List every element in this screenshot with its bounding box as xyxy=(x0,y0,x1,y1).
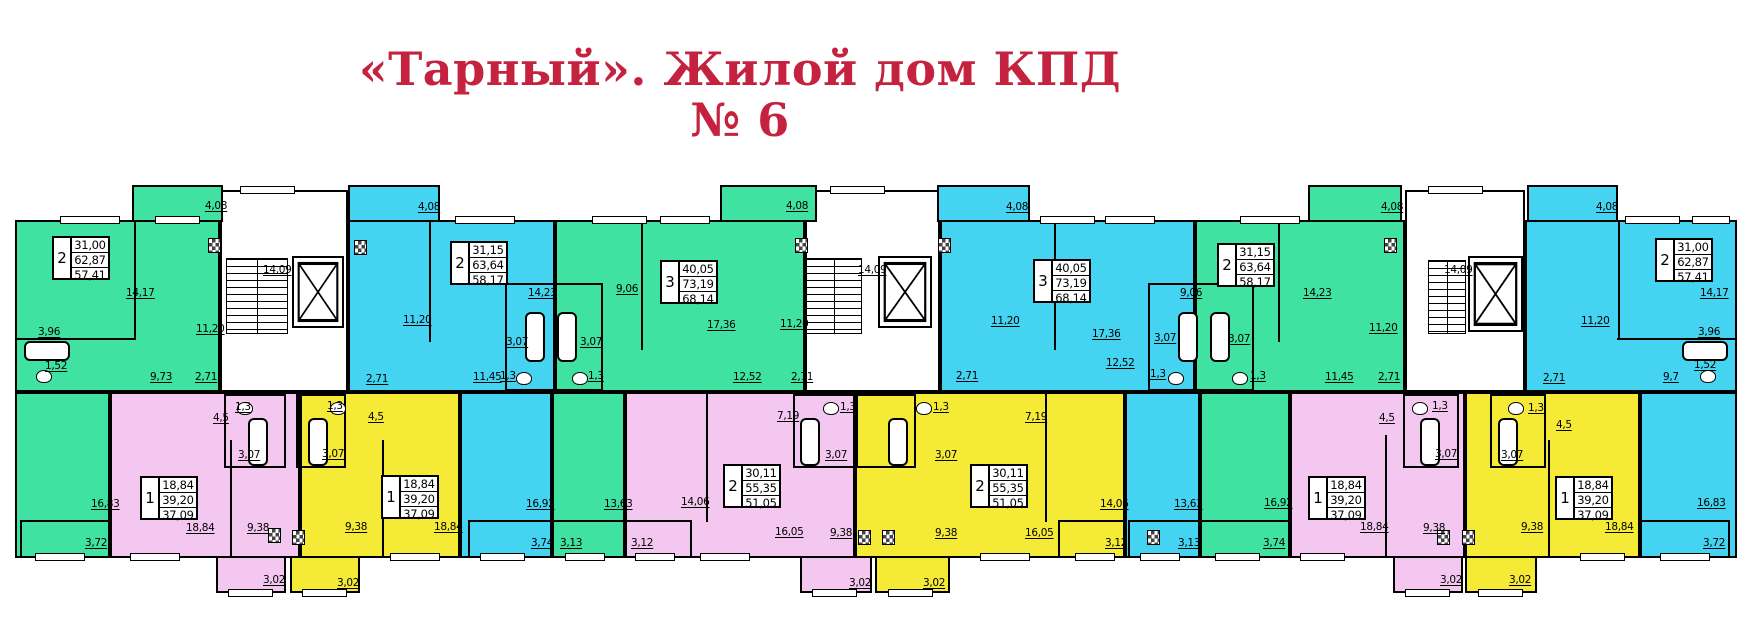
dimension-label: 12,52 xyxy=(1106,358,1135,369)
dimension-label: 3,74 xyxy=(531,538,553,549)
toilet xyxy=(916,402,932,415)
dimension-label: 3,07 xyxy=(935,450,957,461)
vent-shape xyxy=(292,530,305,545)
apartment-info: 231,1563,6458,17 xyxy=(1217,243,1275,287)
dimension-label: 18,84 xyxy=(434,522,463,533)
dimension-label: 3,02 xyxy=(337,578,359,589)
dimension-label: 2,71 xyxy=(1543,373,1565,384)
toilet xyxy=(1700,370,1716,383)
dimension-label: 14,23 xyxy=(528,288,557,299)
dimension-label: 3,02 xyxy=(263,575,285,586)
window-shape xyxy=(1240,216,1300,224)
area-living: 40,05 xyxy=(1053,261,1089,276)
room-count: 1 xyxy=(1310,478,1328,518)
wall-shape xyxy=(1278,220,1280,342)
wall-shape xyxy=(15,390,1737,393)
dimension-label: 9,06 xyxy=(1180,288,1202,299)
dimension-label: 4,5 xyxy=(213,413,229,424)
bathtub xyxy=(800,418,820,466)
window-shape xyxy=(1692,216,1730,224)
dimension-label: 9,7 xyxy=(1663,372,1679,383)
window-shape xyxy=(1075,553,1115,561)
wall-shape xyxy=(1618,220,1620,340)
area-living: 31,00 xyxy=(72,238,108,253)
area-total: 39,20 xyxy=(401,492,437,507)
dimension-label: 1,3 xyxy=(1150,369,1166,380)
area-total: 63,64 xyxy=(1237,260,1273,275)
dimension-label: 11,20 xyxy=(403,315,432,326)
dimension-label: 1,3 xyxy=(1528,403,1544,414)
dimension-label: 3,12 xyxy=(631,538,653,549)
bathtub xyxy=(557,312,577,362)
dimension-label: 3,72 xyxy=(1703,538,1725,549)
dimension-label: 7,19 xyxy=(1025,412,1047,423)
window-shape xyxy=(35,553,85,561)
dimension-label: 1,52 xyxy=(1694,360,1716,371)
dimension-label: 3,07 xyxy=(1228,334,1250,345)
window-shape xyxy=(1428,186,1483,194)
dimension-label: 4,08 xyxy=(1006,202,1028,213)
dimension-label: 11,20 xyxy=(780,319,809,330)
dimension-label: 18,84 xyxy=(186,523,215,534)
dimension-label: 14,17 xyxy=(1700,288,1729,299)
dimension-label: 1,3 xyxy=(933,402,949,413)
dimension-label: 2,71 xyxy=(1378,372,1400,383)
dimension-label: 4,08 xyxy=(786,201,808,212)
toilet xyxy=(823,402,839,415)
dimension-label: 16,05 xyxy=(775,527,804,538)
dimension-label: 3,07 xyxy=(1501,450,1523,461)
area-reduced: 57,41 xyxy=(72,268,108,282)
dimension-label: 3,07 xyxy=(322,449,344,460)
bathtub xyxy=(1178,312,1198,362)
dimension-label: 16,92 xyxy=(1264,498,1293,509)
area-total: 39,20 xyxy=(1575,493,1611,508)
dimension-label: 1,3 xyxy=(840,402,856,413)
area-living: 31,15 xyxy=(1237,245,1273,260)
dimension-label: 13,63 xyxy=(1174,499,1203,510)
area-living: 30,11 xyxy=(743,466,779,481)
dimension-label: 3,07 xyxy=(506,337,528,348)
window-shape xyxy=(1405,589,1450,597)
window-shape xyxy=(1478,589,1523,597)
dimension-label: 9,38 xyxy=(830,528,852,539)
window-shape xyxy=(1625,216,1680,224)
area-living: 18,84 xyxy=(1575,478,1611,493)
apartment-info: 231,0062,8757,41 xyxy=(52,236,110,280)
vent-shape xyxy=(208,238,221,253)
window-shape xyxy=(592,216,647,224)
apartment-info: 231,1563,6458,17 xyxy=(450,241,508,285)
dimension-label: 14,23 xyxy=(1303,288,1332,299)
area-reduced: 68,14 xyxy=(680,292,716,306)
dimension-label: 14,09 xyxy=(858,265,887,276)
apartment-info: 230,1155,3551,05 xyxy=(970,464,1028,508)
apartment-info: 231,0062,8757,41 xyxy=(1655,238,1713,282)
dimension-label: 3,07 xyxy=(580,337,602,348)
dimension-label: 1,3 xyxy=(588,371,604,382)
toilet xyxy=(1508,402,1524,415)
vent-shape xyxy=(882,530,895,545)
window-shape xyxy=(1105,216,1155,224)
area-reduced: 58,17 xyxy=(470,273,506,287)
area-reduced: 58,17 xyxy=(1237,275,1273,289)
window-shape xyxy=(830,186,885,194)
dimension-label: 2,71 xyxy=(956,371,978,382)
dimension-label: 3,07 xyxy=(238,450,260,461)
window-shape xyxy=(1580,553,1625,561)
dimension-label: 1,52 xyxy=(45,361,67,372)
dimension-label: 3,74 xyxy=(1263,538,1285,549)
window-shape xyxy=(635,553,675,561)
dimension-label: 3,96 xyxy=(1698,327,1720,338)
dimension-label: 1,3 xyxy=(327,401,343,412)
dimension-label: 9,38 xyxy=(345,522,367,533)
apartment-info: 340,0573,1968,14 xyxy=(1033,259,1091,303)
vent-shape xyxy=(858,530,871,545)
elevator-x-icon xyxy=(297,261,339,323)
dimension-label: 3,02 xyxy=(849,578,871,589)
wall-shape xyxy=(1548,440,1550,558)
window-shape xyxy=(660,216,710,224)
window-shape xyxy=(390,553,440,561)
toilet xyxy=(1412,402,1428,415)
vent-shape xyxy=(268,528,281,543)
dimension-label: 17,36 xyxy=(707,320,736,331)
window-shape xyxy=(130,553,180,561)
dimension-label: 14,09 xyxy=(1444,265,1473,276)
dimension-label: 4,5 xyxy=(368,412,384,423)
window-shape xyxy=(240,186,295,194)
window-shape xyxy=(565,553,605,561)
dimension-label: 4,5 xyxy=(1379,413,1395,424)
bathtub xyxy=(1210,312,1230,362)
dimension-label: 7,19 xyxy=(777,411,799,422)
dimension-label: 14,09 xyxy=(263,265,292,276)
wall-shape xyxy=(1385,435,1387,558)
dimension-label: 3,12 xyxy=(1105,538,1127,549)
area-reduced: 68,14 xyxy=(1053,291,1089,305)
dimension-label: 9,38 xyxy=(935,528,957,539)
room-count: 2 xyxy=(452,243,470,283)
room-count: 1 xyxy=(383,477,401,517)
vent-shape xyxy=(1462,530,1475,545)
dimension-label: 18,84 xyxy=(1605,522,1634,533)
room-count: 2 xyxy=(54,238,72,278)
toilet xyxy=(1168,372,1184,385)
bathtub xyxy=(888,418,908,466)
area-total: 62,87 xyxy=(1675,255,1711,270)
dimension-label: 4,08 xyxy=(1381,202,1403,213)
dimension-label: 16,83 xyxy=(1697,498,1726,509)
window-shape xyxy=(302,589,347,597)
area-living: 18,84 xyxy=(401,477,437,492)
room-count: 1 xyxy=(142,478,160,518)
dimension-label: 17,36 xyxy=(1092,329,1121,340)
apartment-info: 118,8439,2037,09 xyxy=(381,475,439,519)
dimension-label: 9,73 xyxy=(150,372,172,383)
room-count: 3 xyxy=(662,262,680,302)
area-reduced: 57,41 xyxy=(1675,270,1711,284)
area-total: 39,20 xyxy=(160,493,196,508)
dimension-label: 14,17 xyxy=(126,288,155,299)
dimension-label: 4,5 xyxy=(1556,420,1572,431)
area-total: 55,35 xyxy=(743,481,779,496)
window-shape xyxy=(155,216,200,224)
bathtub xyxy=(1682,341,1728,361)
vent-shape xyxy=(1384,238,1397,253)
room-count: 2 xyxy=(972,466,990,506)
elevator-x-icon xyxy=(1473,261,1518,327)
area-reduced: 51,05 xyxy=(990,496,1026,510)
dimension-label: 2,71 xyxy=(366,374,388,385)
dimension-label: 16,92 xyxy=(526,499,555,510)
window-shape xyxy=(480,553,525,561)
area-reduced: 37,09 xyxy=(401,507,437,521)
window-shape xyxy=(1040,216,1095,224)
dimension-label: 13,63 xyxy=(604,499,633,510)
area-living: 40,05 xyxy=(680,262,716,277)
dimension-label: 16,83 xyxy=(91,499,120,510)
area-living: 18,84 xyxy=(160,478,196,493)
area-total: 39,20 xyxy=(1328,493,1364,508)
dimension-label: 1,3 xyxy=(500,371,516,382)
area-living: 31,15 xyxy=(470,243,506,258)
dimension-label: 3,07 xyxy=(1435,449,1457,460)
room-count: 3 xyxy=(1035,261,1053,301)
area-total: 63,64 xyxy=(470,258,506,273)
wall-shape xyxy=(134,220,136,340)
dimension-label: 12,52 xyxy=(733,372,762,383)
window-shape xyxy=(1660,553,1710,561)
window-shape xyxy=(455,216,515,224)
dimension-label: 1,3 xyxy=(1432,401,1448,412)
apartment-info: 118,8439,2037,09 xyxy=(1555,476,1613,520)
dimension-label: 3,07 xyxy=(825,450,847,461)
apartment-info: 118,8439,2037,09 xyxy=(140,476,198,520)
dimension-label: 11,20 xyxy=(1369,323,1398,334)
dimension-label: 3,02 xyxy=(923,578,945,589)
dimension-label: 11,20 xyxy=(1581,316,1610,327)
vent-shape xyxy=(354,240,367,255)
dimension-label: 3,02 xyxy=(1509,575,1531,586)
dimension-label: 4,08 xyxy=(205,201,227,212)
area-reduced: 37,09 xyxy=(1328,508,1364,522)
area-total: 73,19 xyxy=(1053,276,1089,291)
area-living: 30,11 xyxy=(990,466,1026,481)
dimension-label: 3,02 xyxy=(1440,575,1462,586)
dimension-label: 9,38 xyxy=(1521,522,1543,533)
area-total: 62,87 xyxy=(72,253,108,268)
room-count: 1 xyxy=(1557,478,1575,518)
apartment-info: 118,8439,2037,09 xyxy=(1308,476,1366,520)
window-shape xyxy=(812,589,857,597)
toilet xyxy=(516,372,532,385)
elevator-shaft xyxy=(1468,256,1523,332)
area-reduced: 37,09 xyxy=(160,508,196,522)
dimension-label: 3,96 xyxy=(38,327,60,338)
room-count: 2 xyxy=(1219,245,1237,285)
area-total: 55,35 xyxy=(990,481,1026,496)
dimension-label: 11,45 xyxy=(473,372,502,383)
window-shape xyxy=(1300,553,1345,561)
dimension-label: 3,13 xyxy=(1178,538,1200,549)
dimension-label: 11,20 xyxy=(196,324,225,335)
window-shape xyxy=(700,553,750,561)
dimension-label: 1,3 xyxy=(235,402,251,413)
dimension-label: 9,38 xyxy=(1423,523,1445,534)
window-shape xyxy=(228,589,273,597)
apartment-info: 230,1155,3551,05 xyxy=(723,464,781,508)
window-shape xyxy=(1215,553,1260,561)
dimension-label: 3,13 xyxy=(560,538,582,549)
elevator-shaft xyxy=(292,256,344,328)
window-shape xyxy=(888,589,933,597)
room-count: 2 xyxy=(1657,240,1675,280)
dimension-label: 14,06 xyxy=(681,497,710,508)
vent-shape xyxy=(938,238,951,253)
area-reduced: 37,09 xyxy=(1575,508,1611,522)
area-living: 31,00 xyxy=(1675,240,1711,255)
wall-shape xyxy=(641,220,643,350)
dimension-label: 3,07 xyxy=(1154,333,1176,344)
dimension-label: 3,72 xyxy=(85,538,107,549)
dimension-label: 11,45 xyxy=(1325,372,1354,383)
area-reduced: 51,05 xyxy=(743,496,779,510)
floor-plan-page: «Тарный». Жилой дом КПД № 6 4,084,084,08… xyxy=(0,0,1751,634)
window-shape xyxy=(1140,553,1180,561)
window-shape xyxy=(980,553,1030,561)
dimension-label: 9,06 xyxy=(616,284,638,295)
bathtub xyxy=(24,341,70,361)
dimension-label: 16,05 xyxy=(1025,528,1054,539)
toilet xyxy=(572,372,588,385)
dimension-label: 18,84 xyxy=(1360,522,1389,533)
stair-flight xyxy=(806,258,862,334)
vent-shape xyxy=(1147,530,1160,545)
dimension-label: 4,08 xyxy=(1596,202,1618,213)
dimension-label: 4,08 xyxy=(418,202,440,213)
floor-plan: 4,084,084,084,084,084,0814,0914,0914,091… xyxy=(0,0,1751,634)
wall-shape xyxy=(1617,338,1737,340)
vent-shape xyxy=(795,238,808,253)
wall-shape xyxy=(15,338,135,340)
dimension-label: 2,71 xyxy=(791,372,813,383)
dimension-label: 1,3 xyxy=(1250,371,1266,382)
toilet xyxy=(1232,372,1248,385)
elevator-x-icon xyxy=(883,261,927,323)
dimension-label: 14,06 xyxy=(1100,499,1129,510)
area-living: 18,84 xyxy=(1328,478,1364,493)
dimension-label: 11,20 xyxy=(991,316,1020,327)
dimension-label: 2,71 xyxy=(195,372,217,383)
room-count: 2 xyxy=(725,466,743,506)
window-shape xyxy=(60,216,120,224)
dimension-label: 9,38 xyxy=(247,523,269,534)
area-total: 73,19 xyxy=(680,277,716,292)
apartment-info: 340,0573,1968,14 xyxy=(660,260,718,304)
